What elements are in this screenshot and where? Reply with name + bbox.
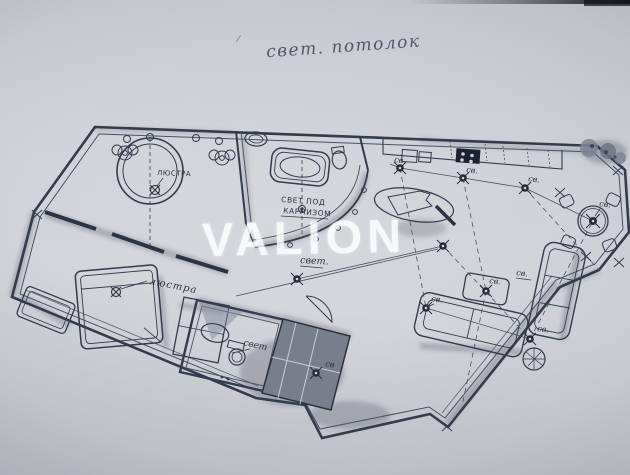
label-spot-plain: св (325, 359, 336, 370)
toilet-icon (331, 146, 348, 170)
spotlight-icon (291, 273, 303, 285)
label-spot: св. (599, 199, 612, 210)
label-spot: св. (516, 268, 529, 279)
label-tub-chandelier: ЛЮСТРА (157, 169, 191, 178)
label-spot: св. (431, 294, 444, 305)
chandelier-icon (150, 178, 163, 195)
label-bed-chandelier: люстра (148, 276, 198, 296)
spotlight-icon (437, 240, 449, 252)
label-cornice-1: СВЕТ ПОД (281, 195, 326, 207)
label-spot: св. (394, 155, 407, 166)
photo-of-floor-plan: ЛЮСТРА СВЕТ ПОД КАРНИЗОМ люстра свет. св… (0, 0, 630, 475)
spotlight-icon (524, 333, 536, 345)
spotlight-icon (586, 214, 600, 228)
stove-icon (456, 148, 481, 164)
bathtub-icon (269, 147, 330, 187)
label-spot: св. (466, 165, 479, 176)
label-spot: св. (537, 324, 550, 335)
label-spot: св. (489, 276, 502, 287)
chandelier-icon (111, 281, 147, 297)
balcony-bay (558, 139, 626, 253)
cabinet-icon (262, 319, 350, 410)
plant-icon (523, 348, 545, 370)
valion-watermark: VALION (201, 208, 406, 267)
spotlight-icon (519, 182, 531, 194)
label-spot: св. (528, 174, 541, 185)
